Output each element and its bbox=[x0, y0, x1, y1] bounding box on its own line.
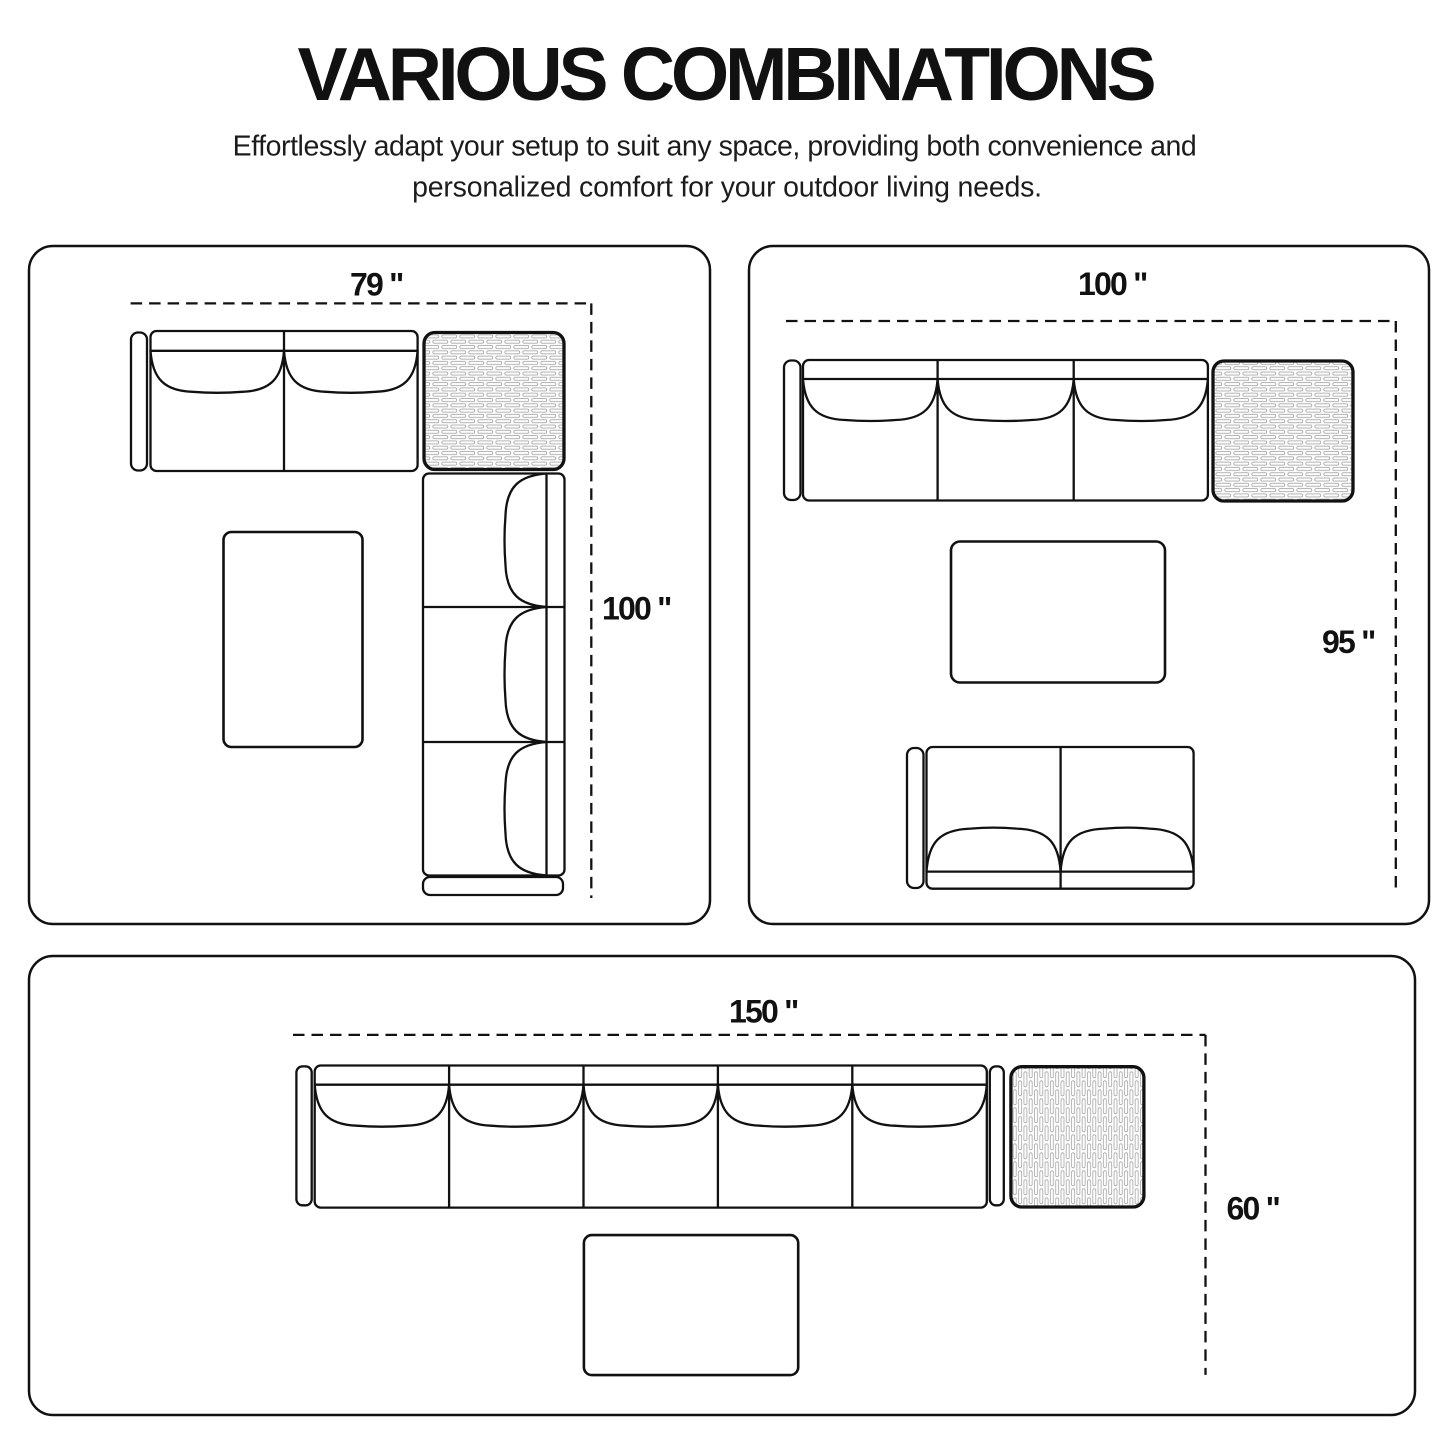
svg-text:100 ": 100 " bbox=[602, 591, 671, 627]
svg-text:150 ": 150 " bbox=[729, 994, 798, 1030]
svg-text:personalized comfort for your: personalized comfort for your outdoor li… bbox=[412, 171, 1042, 203]
svg-text:60 ": 60 " bbox=[1227, 1191, 1280, 1227]
svg-text:Effortlessly adapt your setup: Effortlessly adapt your setup to suit an… bbox=[233, 131, 1197, 163]
svg-text:100 ": 100 " bbox=[1078, 266, 1147, 302]
svg-text:VARIOUS COMBINATIONS: VARIOUS COMBINATIONS bbox=[298, 32, 1155, 116]
svg-text:95 ": 95 " bbox=[1322, 624, 1375, 660]
svg-text:79 ": 79 " bbox=[350, 267, 403, 303]
